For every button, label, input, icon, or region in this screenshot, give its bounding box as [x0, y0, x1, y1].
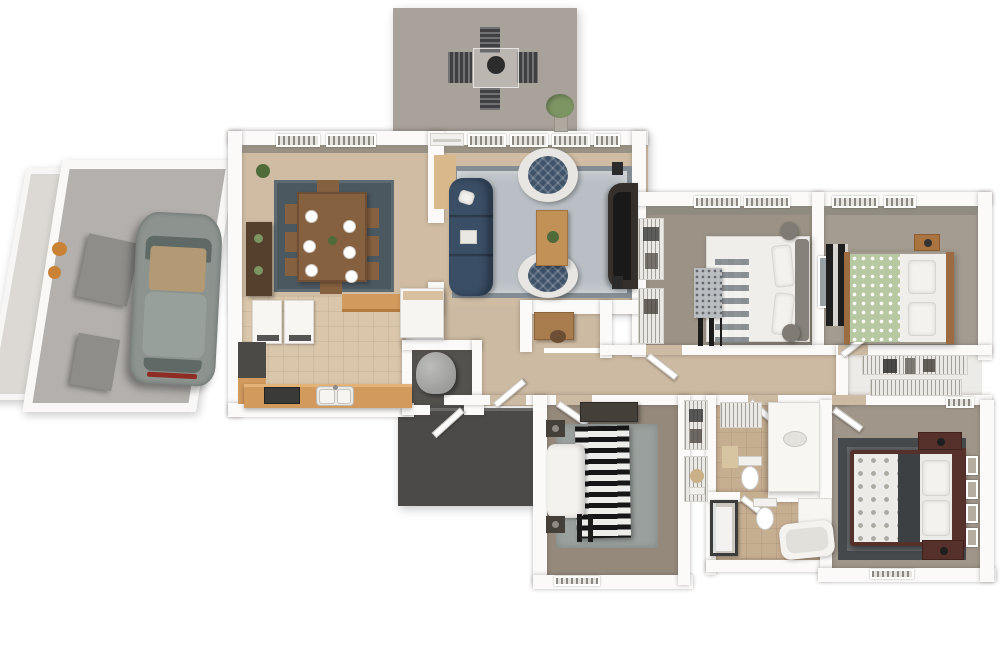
window-bedroom1-1 [694, 196, 740, 208]
window-living-1 [468, 134, 506, 147]
window-living-4 [594, 134, 620, 147]
plate-2 [303, 240, 316, 253]
bathroom-toilet [738, 456, 762, 492]
master-dark-fold [898, 454, 920, 542]
master-wall-frame-1 [966, 456, 978, 475]
window-master-south [870, 569, 914, 579]
closet-bedroom3-upper [684, 400, 708, 450]
bedroom1-dotted-blanket [694, 268, 722, 318]
master-wall-frame-2 [966, 480, 978, 499]
closet-clothes-2 [645, 253, 658, 269]
sink-basin-left [319, 389, 335, 404]
room-entry-porch [398, 408, 546, 506]
bedroom3-nightstand-north [546, 420, 565, 437]
dining-chair-bottom [320, 282, 342, 294]
master-pillow-1 [922, 460, 950, 496]
sideyard-pot-1 [52, 242, 67, 256]
master-nightstand-south [922, 540, 964, 560]
kitchen-sink [316, 386, 354, 406]
patio-door [430, 133, 464, 146]
hall-closet-rod-lower [870, 379, 962, 396]
dining-chair-top [317, 180, 339, 192]
window-bedroom3-south [554, 576, 600, 586]
sideyard-pot-2 [48, 266, 61, 279]
wall-office-left [520, 300, 532, 352]
doorgap-master [832, 395, 866, 405]
patio-plant-foliage [546, 94, 574, 118]
toilet-tank-1 [738, 456, 762, 466]
porch-edge-highlight [398, 408, 546, 411]
dining-chair-right-1 [367, 208, 379, 228]
tv-screen [613, 192, 631, 280]
living-speaker-south [612, 276, 623, 289]
hanging-clothes-3 [923, 359, 935, 372]
bathroom-sink-basin [783, 431, 807, 447]
window-dining-1 [276, 134, 320, 147]
master-wall-frame-3 [966, 504, 978, 523]
garage-storage-unit-2 [70, 333, 120, 392]
sideboard-plant-1 [254, 234, 263, 243]
patio-fire-bowl [487, 56, 505, 74]
window-master-top [946, 397, 974, 408]
wall-master-right [980, 400, 994, 582]
master-bath-tub [778, 519, 835, 560]
car-roof [142, 291, 207, 358]
window-bedroom1-2 [744, 196, 790, 208]
kitchen-island [400, 288, 444, 338]
sideboard-plant-2 [254, 266, 263, 275]
bedroom3-white-blanket [547, 444, 585, 518]
toilet-tank-2 [753, 498, 777, 507]
dining-corner-plant [256, 164, 270, 178]
bedroom2-bed [844, 252, 954, 344]
coffee-table-plant [547, 231, 559, 243]
floorplan [0, 0, 1000, 664]
table-centerpiece [328, 236, 337, 245]
water-heater [416, 352, 456, 394]
master-pillow-2 [922, 500, 950, 536]
master-bed [850, 450, 964, 546]
bedroom1-closet-upper [638, 218, 664, 280]
island-counter-face [403, 291, 443, 300]
kitchen-washer [252, 300, 282, 344]
master-lamp-north [937, 438, 945, 446]
window-dining-2 [326, 134, 376, 147]
hall-closet-rod-upper [862, 355, 968, 375]
bedroom3-foot-bench [577, 514, 599, 542]
window-living-2 [510, 134, 548, 147]
patio-chair-south [480, 88, 500, 110]
plate-6 [345, 270, 358, 283]
closet-clothes-3 [644, 299, 658, 314]
toilet-bowl-2 [756, 507, 774, 530]
bedroom2-pillow-1 [908, 260, 936, 294]
dryer-vent [289, 335, 311, 341]
linen-basket [690, 469, 704, 483]
kitchen-dryer [284, 300, 314, 344]
window-bedroom2-2 [884, 196, 916, 208]
bedroom3-lamp-north [552, 425, 559, 432]
living-coffee-table [536, 210, 568, 266]
plate-4 [343, 220, 356, 233]
bedroom2-pillow-2 [908, 302, 936, 336]
sink-faucet [333, 385, 338, 390]
kitchen-counter-top-strip [342, 294, 406, 312]
bedroom3-dresser [580, 402, 638, 422]
closet-clothes-4 [689, 409, 703, 422]
plate-5 [343, 246, 356, 259]
living-tv-console [608, 183, 638, 289]
sink-basin-right [337, 389, 351, 404]
patio-chair-east [517, 52, 538, 83]
bathroom-wire-shelf [720, 402, 762, 428]
bedroom1-pouf-south [782, 324, 800, 342]
dining-sideboard [246, 222, 272, 296]
car-cabin-interior [148, 246, 206, 293]
master-headboard [956, 448, 966, 548]
wall-hall-south [444, 395, 992, 405]
wall-utility-top [402, 340, 482, 350]
hanging-clothes-1 [883, 359, 897, 373]
office-chair [550, 330, 566, 343]
kitchen-counter-dark [238, 342, 266, 378]
patio-door-leaf [433, 139, 461, 142]
bedroom1-pouf-north [780, 222, 798, 240]
window-living-3 [552, 134, 590, 147]
bedroom2-nightstand [914, 234, 940, 251]
bedroom3-nightstand-south [546, 516, 565, 533]
tub-chair-north-cushion [528, 156, 568, 194]
bedroom2-headboard [946, 252, 954, 344]
master-bath-toilet [753, 498, 777, 532]
master-bath-shower [710, 500, 738, 556]
sofa-throw-pillow [457, 189, 475, 206]
bedroom1-closet-lower [638, 288, 664, 344]
closet-clothes-1 [643, 227, 659, 241]
dining-chair-left-3 [285, 258, 297, 276]
wall-east-outer-top [978, 192, 992, 360]
bedroom2-green-duvet [850, 254, 900, 342]
living-sofa [449, 178, 493, 296]
patio-chair-west [448, 52, 472, 83]
wall-bath-south [706, 560, 826, 572]
dining-table [297, 192, 367, 282]
dining-chair-right-2 [367, 236, 379, 256]
living-tub-chair-north [518, 148, 578, 202]
car [129, 211, 224, 387]
master-wall-frame-4 [966, 528, 978, 547]
hanging-clothes-2 [905, 358, 915, 374]
bathroom-mat [722, 446, 738, 468]
bedroom3-lamp-south [552, 521, 559, 528]
tub-basin [785, 526, 829, 554]
closet-clothes-5 [690, 429, 702, 443]
toilet-bowl-1 [741, 466, 759, 490]
sofa-tray [460, 230, 477, 244]
window-bedroom2-1 [832, 196, 878, 208]
plate-1 [305, 210, 318, 223]
kitchen-cooktop [264, 387, 300, 404]
closet-linen [684, 456, 708, 502]
dining-chair-right-3 [367, 262, 379, 280]
wall-bedroom3-left [533, 395, 547, 585]
bedroom2-lamp [924, 239, 932, 247]
living-speaker-north [612, 162, 623, 175]
master-nightstand-north [918, 432, 962, 450]
linen-towels [689, 487, 705, 495]
bedroom1-pillow-1 [771, 244, 795, 288]
bathroom-vanity [768, 402, 820, 492]
shower-tray [716, 507, 732, 551]
plate-3 [305, 264, 318, 277]
master-lamp-south [940, 547, 948, 555]
dining-chair-left-1 [285, 204, 297, 224]
bedroom1-foot-bars [698, 318, 722, 346]
dining-chair-left-2 [285, 232, 297, 252]
washer-vent [257, 335, 279, 341]
